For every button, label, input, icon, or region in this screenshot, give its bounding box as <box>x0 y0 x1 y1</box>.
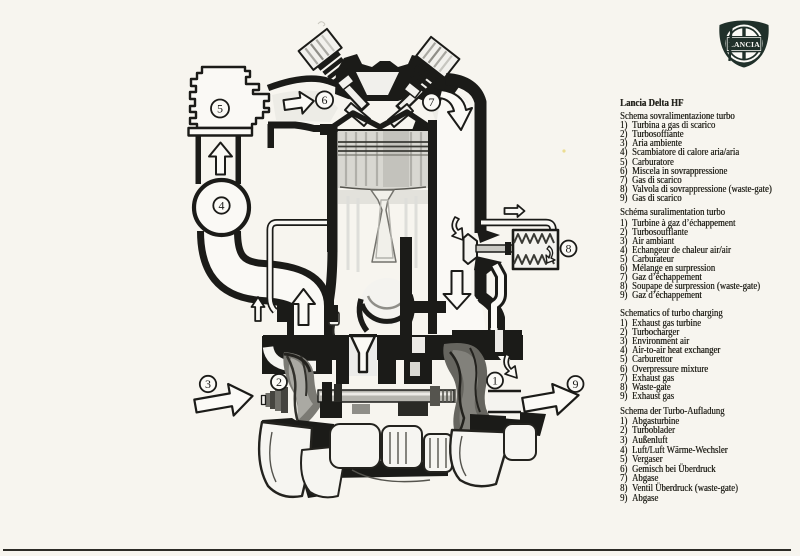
svg-text:7: 7 <box>429 95 435 109</box>
svg-text:LANCIA: LANCIA <box>729 40 760 49</box>
svg-text:2: 2 <box>276 375 282 389</box>
svg-text:4: 4 <box>219 199 225 213</box>
svg-text:6: 6 <box>322 93 328 107</box>
svg-text:9: 9 <box>573 377 579 391</box>
svg-text:8: 8 <box>566 242 572 256</box>
svg-text:5: 5 <box>217 102 223 116</box>
svg-text:3: 3 <box>205 377 211 391</box>
svg-text:1: 1 <box>492 374 498 388</box>
